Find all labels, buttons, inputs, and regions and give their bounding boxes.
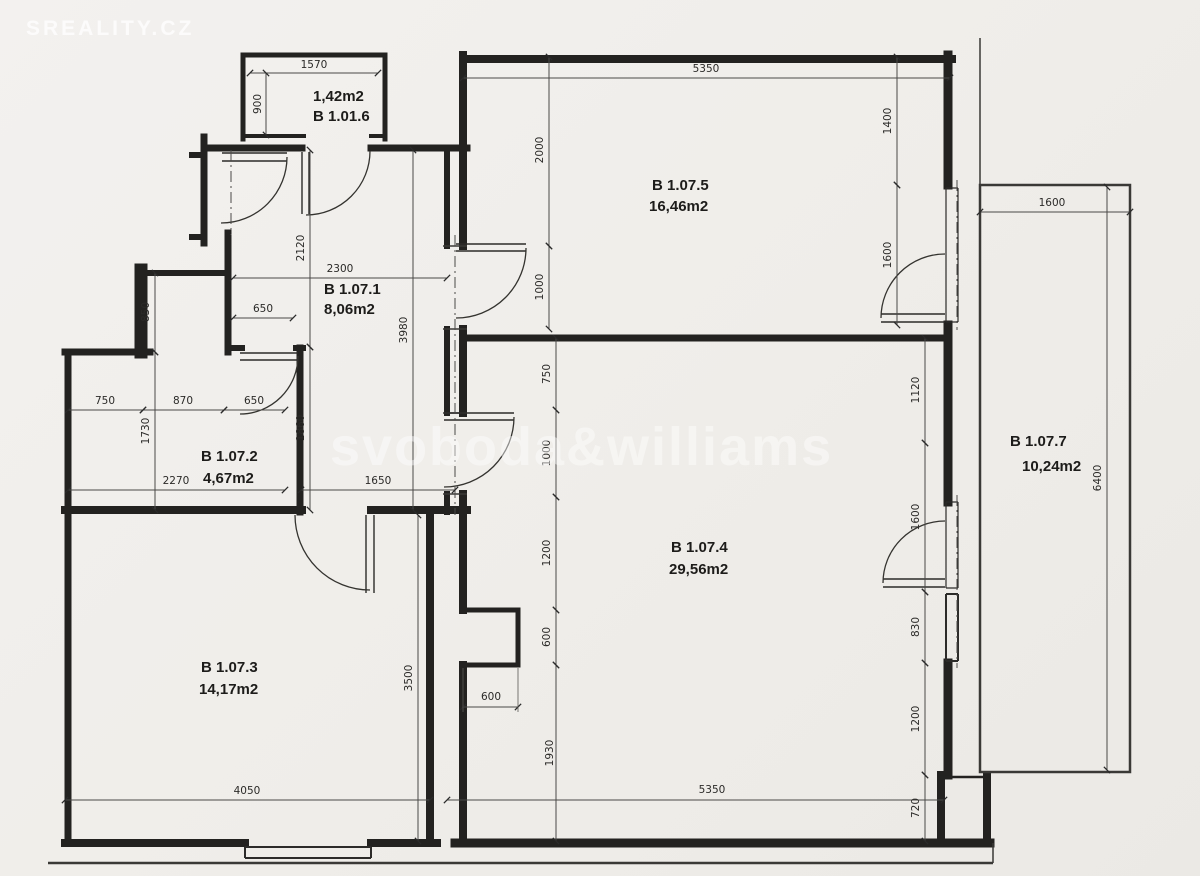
dim-hall-lower-height: 1860	[295, 415, 307, 442]
dim-room3-width: 4050	[234, 785, 261, 797]
watermark-svoboda-williams: svoboda&williams	[330, 417, 833, 477]
dim-balcony-length: 6400	[1092, 465, 1104, 492]
door-leaf	[881, 314, 945, 322]
balcony-door-frame-room5	[946, 188, 958, 322]
dim-room4-niche-depth: 600	[481, 691, 501, 703]
room-vestibule-id: B 1.01.6	[313, 108, 370, 125]
room-3-area: 14,17m2	[199, 681, 258, 698]
dim-room4-right-mid: 1200	[910, 706, 922, 733]
room-bath-id: B 1.07.2	[201, 448, 258, 465]
dim-room4-right-door: 1600	[910, 504, 922, 531]
floorplan-page: 1570 900 5350 2000 1000 1400 1600 2120 2…	[0, 0, 1200, 876]
dim-bath-seg-left: 750	[95, 395, 115, 407]
dim-room4-left-mid: 1200	[541, 540, 553, 567]
dim-room4-left-upper: 750	[541, 364, 553, 384]
floorplan-drawing: 1570 900 5350 2000 1000 1400 1600 2120 2…	[0, 0, 1200, 876]
dim-bath-lower-height: 1730	[140, 418, 152, 445]
dim-room3-height: 3500	[403, 665, 415, 692]
dim-room4-left-lower: 1930	[544, 740, 556, 767]
door-leaf	[240, 353, 298, 360]
dim-hall-shaft-width: 650	[253, 303, 273, 315]
window-room3	[245, 847, 371, 858]
dim-bath-door-width: 650	[244, 395, 264, 407]
room-3-id: B 1.07.3	[201, 659, 258, 676]
door-swing-arc	[456, 248, 526, 318]
center-lines	[231, 150, 957, 668]
dim-room5-left-upper: 2000	[534, 137, 546, 164]
dim-balcony-width: 1600	[1039, 197, 1066, 209]
dim-room4-bottom-width: 5350	[699, 784, 726, 796]
door-swing-arc	[306, 151, 370, 215]
dim-room4-niche-height: 600	[541, 627, 553, 647]
dim-room5-right-upper: 1400	[882, 108, 894, 135]
window-room4	[946, 594, 958, 661]
watermark-sreality: SREALITY.CZ	[26, 17, 194, 40]
door-leaf	[883, 579, 945, 587]
room-balcony-area: 10,24m2	[1022, 458, 1081, 475]
dim-room4-right-upper: 1120	[910, 377, 922, 404]
dim-hall-right-height: 3980	[398, 317, 410, 344]
dim-room5-top-width: 5350	[693, 63, 720, 75]
door-leaf	[366, 515, 374, 593]
dim-room4-right-lower: 720	[910, 798, 922, 818]
door-leaf	[302, 152, 309, 214]
watermarks: SREALITY.CZ svoboda&williams	[26, 17, 833, 477]
dim-bath-seg-mid: 870	[173, 395, 193, 407]
dim-room4-right-window: 830	[910, 617, 922, 637]
room-bath-area: 4,67m2	[203, 470, 254, 487]
dim-entry-height: 2120	[295, 235, 307, 262]
balcony-door-frame-room4	[946, 502, 958, 588]
dim-bath-upper-height: 850	[140, 302, 152, 322]
room-4-area: 29,56m2	[669, 561, 728, 578]
dim-room5-left-door: 1000	[534, 274, 546, 301]
room-4-id: B 1.07.4	[671, 539, 728, 556]
room-hall-area: 8,06m2	[324, 301, 375, 318]
room-5-id: B 1.07.5	[652, 177, 709, 194]
extension-line	[463, 668, 518, 712]
door-swing-arc	[295, 515, 370, 590]
dim-bath-bottom-width: 2270	[163, 475, 190, 487]
room-vestibule-area: 1,42m2	[313, 88, 364, 105]
doors	[221, 151, 945, 593]
dim-vestibule-depth: 900	[252, 94, 264, 114]
room-5-area: 16,46m2	[649, 198, 708, 215]
dim-hall-width: 2300	[327, 263, 354, 275]
dim-vestibule-width: 1570	[301, 59, 328, 71]
room-hall-id: B 1.07.1	[324, 281, 381, 298]
dim-room5-right-door: 1600	[882, 242, 894, 269]
door-leaf	[222, 153, 287, 161]
wall-segment	[463, 610, 518, 665]
room-balcony-id: B 1.07.7	[1010, 433, 1067, 450]
